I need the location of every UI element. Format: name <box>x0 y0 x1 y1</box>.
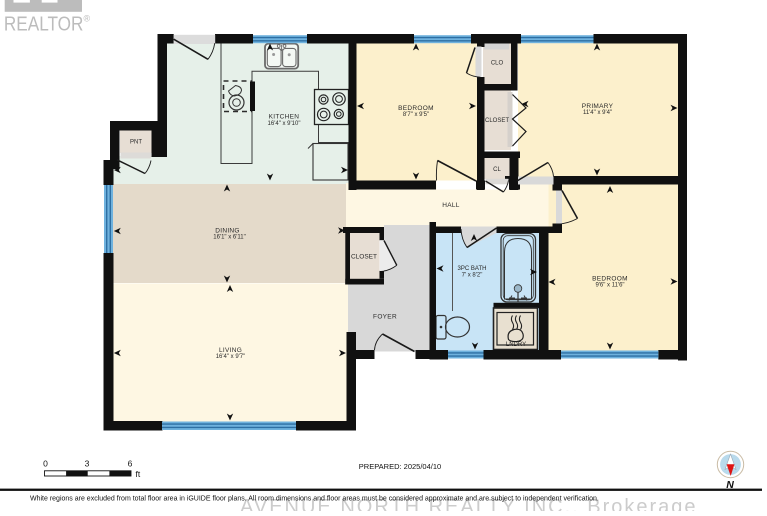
svg-text:REALTOR: REALTOR <box>4 13 84 35</box>
svg-text:11'4" x 9'4": 11'4" x 9'4" <box>583 110 612 116</box>
svg-text:CLO: CLO <box>491 61 504 67</box>
svg-text:PRIMARY: PRIMARY <box>582 103 614 110</box>
svg-text:0: 0 <box>43 459 48 469</box>
svg-text:CLOSET: CLOSET <box>485 118 509 124</box>
svg-text:9'6" x 11'6": 9'6" x 11'6" <box>595 283 624 289</box>
svg-text:White regions are excluded fro: White regions are excluded from total fl… <box>30 496 599 503</box>
svg-text:KITCHEN: KITCHEN <box>269 114 300 121</box>
svg-text:CL: CL <box>493 167 501 173</box>
svg-text:CLOSET: CLOSET <box>351 254 377 261</box>
svg-text:16'1" x 6'11": 16'1" x 6'11" <box>213 235 245 241</box>
svg-text:PREPARED: 2025/04/10: PREPARED: 2025/04/10 <box>359 462 441 471</box>
svg-text:3: 3 <box>85 459 90 469</box>
svg-text:BEDROOM: BEDROOM <box>592 276 628 283</box>
svg-text:16'4" x 9'10": 16'4" x 9'10" <box>268 121 301 127</box>
svg-text:DINING: DINING <box>215 228 240 235</box>
svg-text:3PC BATH: 3PC BATH <box>458 266 487 272</box>
svg-text:7' x 8'2": 7' x 8'2" <box>462 273 483 279</box>
svg-text:8'7" x 9'5": 8'7" x 9'5" <box>403 112 429 118</box>
svg-text:LIVING: LIVING <box>219 347 242 354</box>
svg-text:6: 6 <box>128 459 133 469</box>
svg-text:BEDROOM: BEDROOM <box>398 105 434 112</box>
svg-text:HALL: HALL <box>442 202 460 209</box>
svg-text:FOYER: FOYER <box>373 314 397 321</box>
svg-text:PNT: PNT <box>130 140 142 146</box>
svg-text:16'4" x 9'7": 16'4" x 9'7" <box>216 354 246 360</box>
svg-text:LNDRY: LNDRY <box>506 342 526 348</box>
svg-text:ft: ft <box>136 469 141 479</box>
svg-text:®: ® <box>84 14 91 24</box>
